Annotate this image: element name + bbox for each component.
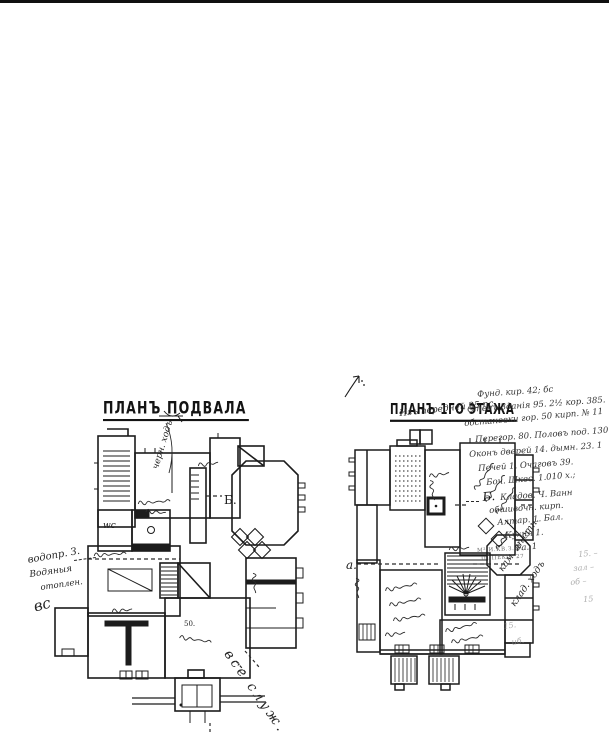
margin-note-1: 15. – (578, 549, 598, 559)
basement-wc-label: wc (103, 521, 116, 531)
margin-note-3: об – (570, 577, 587, 587)
scanned-archive-page: ПЛАНЪ ПОДВАЛА (0, 0, 609, 735)
basement-plan-drawing: Б. wc 50. (50, 423, 305, 735)
basement-diamond-floor-pattern (232, 529, 271, 559)
first-floor-section-b-label: Б. (482, 490, 496, 503)
basement-ground-lines (132, 696, 265, 707)
basement-room-number: 50. (184, 620, 195, 628)
margin-note-4: 15 (583, 595, 594, 604)
basement-left-note-4: вс (32, 596, 52, 615)
basement-section-b-label: Б. (224, 493, 237, 507)
corner-arrow-mark-icon (340, 371, 366, 399)
stove-icon (428, 498, 444, 514)
margin-note-2: зал – (573, 563, 594, 573)
first-floor-section-a-label: а. (346, 558, 357, 572)
basement-outer-walls (55, 429, 298, 711)
estimate-note-1: Фунд. кир. 42; бс (477, 386, 554, 400)
page-top-edge-line (0, 0, 609, 3)
section-b-leader-dash (466, 501, 479, 502)
